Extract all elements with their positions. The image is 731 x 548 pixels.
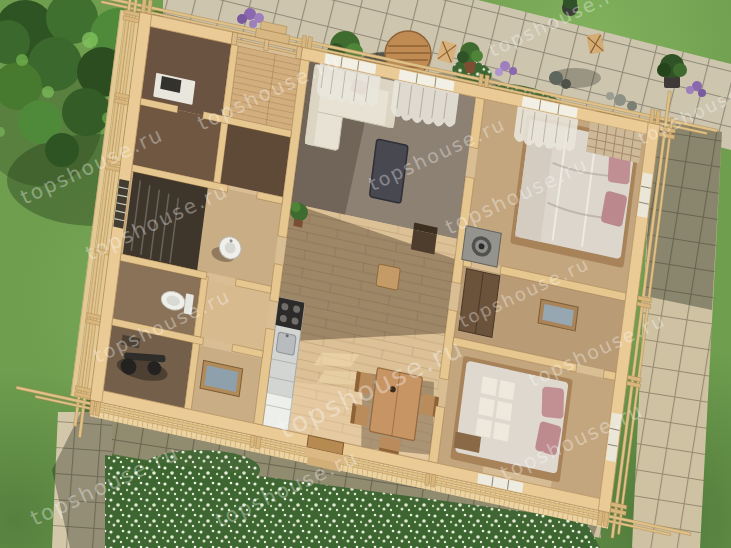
hall-stool — [376, 264, 400, 291]
render-viewport: topshouse.ru topshouse.ru topshouse.ru t… — [0, 0, 731, 548]
scene-render: topshouse.ru topshouse.ru topshouse.ru t… — [0, 0, 731, 548]
hall-chair — [411, 223, 438, 255]
stove — [275, 297, 304, 330]
